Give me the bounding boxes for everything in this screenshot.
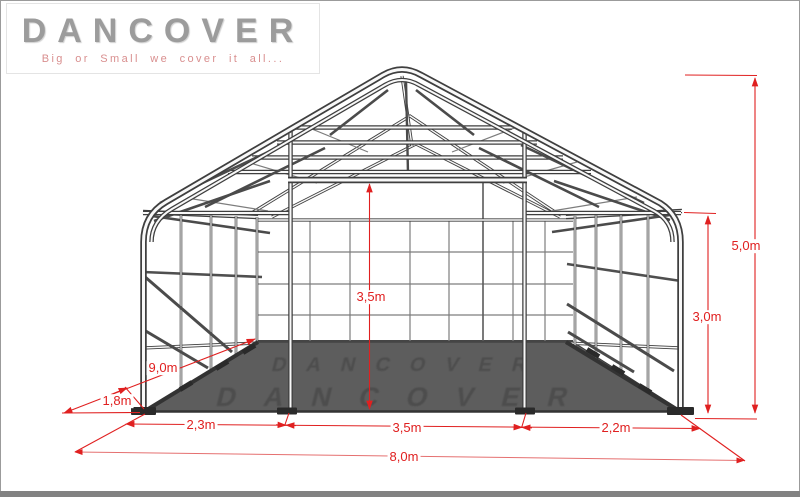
product-dimension-diagram: DANCOVER DANCOVER: [0, 0, 800, 497]
dim-label-door-width: 3,5m: [391, 421, 424, 435]
roof-frame: [152, 76, 670, 233]
dim-label-right-width: 2,2m: [600, 421, 633, 435]
dim-label-door-height: 3,5m: [355, 290, 388, 304]
dim-label-ridge-height: 5,0m: [730, 239, 763, 253]
brand-tagline: Big or Small we cover it all...: [11, 53, 315, 65]
floor-watermark-row1: DANCOVER: [270, 354, 550, 376]
dim-label-bay-spacing: 1,8m: [101, 394, 134, 408]
dim-label-side-height: 3,0m: [691, 310, 724, 324]
dim-label-depth: 9,0m: [147, 361, 180, 375]
dim-label-left-width: 2,3m: [185, 418, 218, 432]
brand-logo: DANCOVER Big or Small we cover it all...: [6, 3, 320, 74]
dim-label-total-width: 8,0m: [388, 450, 421, 464]
floor-watermark-row2: DANCOVER: [213, 381, 599, 412]
footer-bar: [0, 491, 800, 497]
brand-name: DANCOVER: [11, 14, 315, 50]
